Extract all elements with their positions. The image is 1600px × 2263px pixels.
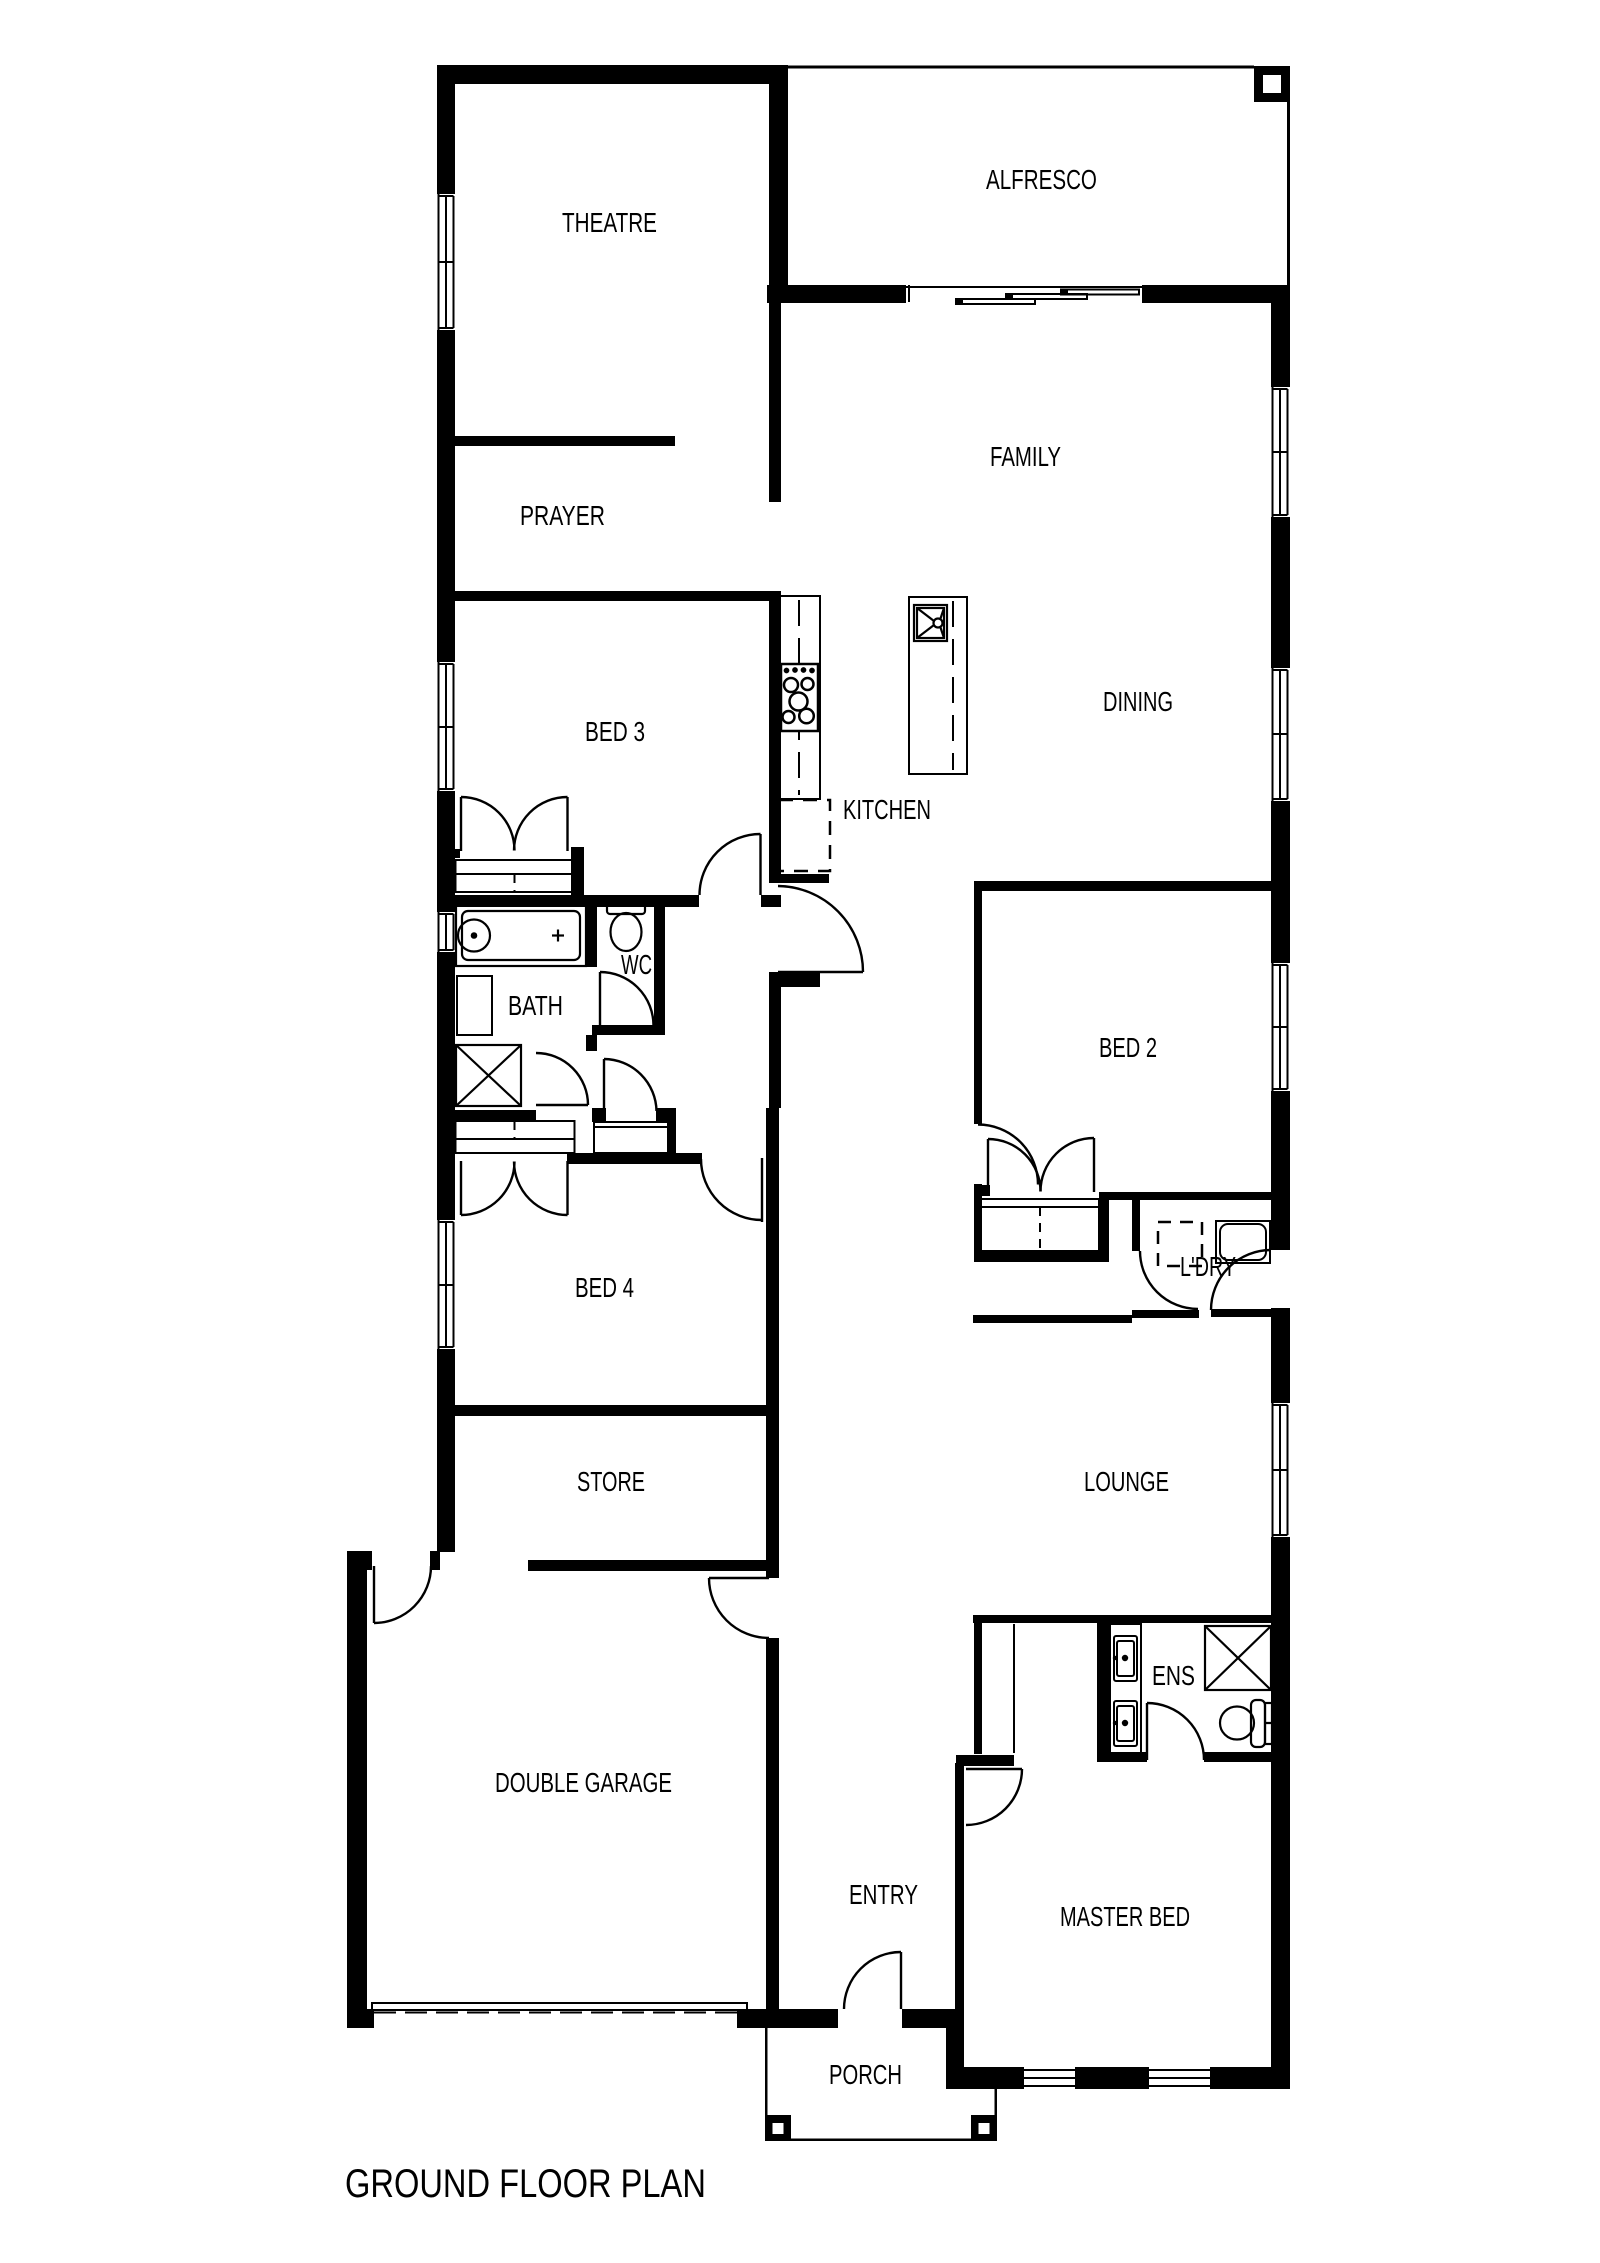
- svg-text:ENS: ENS: [1152, 1661, 1195, 1692]
- svg-text:LOUNGE: LOUNGE: [1084, 1467, 1169, 1498]
- svg-text:BED 4: BED 4: [575, 1273, 634, 1304]
- svg-text:GROUND FLOOR PLAN: GROUND FLOOR PLAN: [345, 2161, 706, 2206]
- svg-text:THEATRE: THEATRE: [562, 208, 657, 239]
- svg-text:STORE: STORE: [577, 1467, 645, 1498]
- svg-text:WC: WC: [621, 949, 652, 981]
- svg-text:BED 3: BED 3: [585, 717, 645, 748]
- svg-text:ALFRESCO: ALFRESCO: [986, 165, 1097, 196]
- svg-text:BATH: BATH: [508, 991, 563, 1021]
- svg-text:DOUBLE GARAGE: DOUBLE GARAGE: [495, 1768, 672, 1799]
- svg-text:ENTRY: ENTRY: [849, 1880, 918, 1911]
- svg-text:FAMILY: FAMILY: [990, 442, 1061, 473]
- svg-text:L'DRY: L'DRY: [1180, 1252, 1236, 1283]
- svg-text:MASTER BED: MASTER BED: [1060, 1902, 1190, 1933]
- svg-text:PRAYER: PRAYER: [520, 501, 605, 532]
- svg-text:BED 2: BED 2: [1099, 1033, 1157, 1064]
- svg-text:PORCH: PORCH: [829, 2060, 902, 2091]
- svg-text:DINING: DINING: [1103, 687, 1173, 718]
- svg-text:KITCHEN: KITCHEN: [843, 795, 931, 826]
